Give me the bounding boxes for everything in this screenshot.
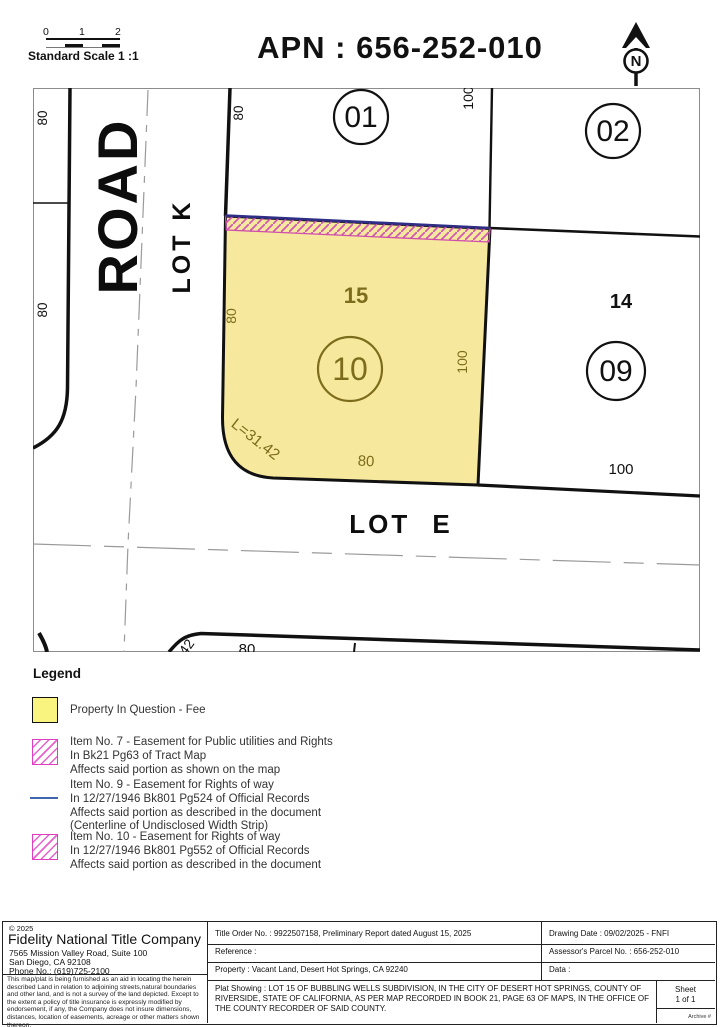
- lot-14-label: 14: [610, 291, 633, 313]
- dim-80-parcel-west: 80: [223, 308, 239, 324]
- scale-tick-0: 0: [43, 26, 49, 38]
- plat-map-page: 0 1 2 Standard Scale 1 :1 APN : 656-252-…: [0, 0, 720, 1027]
- north-letter: N: [631, 53, 642, 70]
- road-name: ROAD: [86, 118, 149, 295]
- lot-15-label: 15: [344, 283, 368, 308]
- lot-e-label: LOT E: [349, 509, 453, 539]
- property: Property : Vacant Land, Desert Hot Sprin…: [215, 965, 408, 974]
- legend-swatch-item7-hatch: [32, 739, 58, 765]
- legend-title: Legend: [33, 666, 81, 681]
- legend-swatch-item9-blue-line: [30, 797, 58, 799]
- parcel-01-label: 01: [344, 101, 377, 134]
- north-arrow-icon: N: [608, 10, 666, 88]
- parcel-09-label: 09: [599, 355, 632, 388]
- parcel-10-label: 10: [332, 351, 368, 387]
- sheet-value: 1 of 1: [656, 995, 715, 1005]
- drawing-date: Drawing Date : 09/02/2025 - FNFI: [549, 929, 669, 938]
- title-block: © 2025 Fidelity National Title Company 7…: [2, 921, 717, 1025]
- dim-80-left-top: 80: [35, 110, 50, 125]
- lot-k-label: LOT K: [168, 199, 196, 294]
- dim-80-road-top: 80: [231, 105, 246, 120]
- sheet-box: Sheet 1 of 1: [656, 985, 715, 1005]
- plat-showing: Plat Showing : LOT 15 OF BUBBLING WELLS …: [215, 984, 651, 1013]
- dim-80-parcel-south: 80: [357, 453, 375, 471]
- archive-label: Archive #: [656, 1014, 711, 1020]
- legend-item-fee: Property In Question - Fee: [70, 704, 206, 718]
- dim-80-left-mid: 80: [35, 302, 50, 317]
- sheet-label: Sheet: [656, 985, 715, 995]
- dim-100-south-right: 100: [608, 461, 633, 478]
- data-label: Data :: [549, 965, 570, 974]
- plat-map: 01 02 09 10 ROAD LOT K LOT E 15 14 80 80…: [33, 88, 700, 652]
- legend-swatch-item10-hatch: [32, 834, 58, 860]
- company-name: Fidelity National Title Company: [8, 931, 201, 947]
- company-phone: Phone No.: (619)725-2100: [9, 966, 110, 976]
- legend-item-10: Item No. 10 - Easement for Rights of way…: [70, 831, 321, 872]
- legend-item-7: Item No. 7 - Easement for Public utiliti…: [70, 736, 333, 777]
- legend-item-9: Item No. 9 - Easement for Rights of way …: [70, 779, 321, 834]
- legend-swatch-fee: [32, 697, 58, 723]
- parcel-02-label: 02: [596, 115, 629, 148]
- bottom-tick: [354, 643, 355, 652]
- dim-80-bottom-clipped: 80: [239, 641, 256, 652]
- dim-100-parcel-east: 100: [454, 350, 470, 374]
- title-order: Title Order No. : 9922507158, Preliminar…: [215, 929, 471, 938]
- dim-100-top-right: 100: [460, 88, 476, 110]
- assessor-parcel-no: Assessor's Parcel No. : 656-252-010: [549, 947, 679, 956]
- company-address-1: 7565 Mission Valley Road, Suite 100: [9, 948, 147, 958]
- reference: Reference :: [215, 947, 256, 956]
- disclaimer: This map/plat is being furnished as an a…: [7, 976, 205, 1027]
